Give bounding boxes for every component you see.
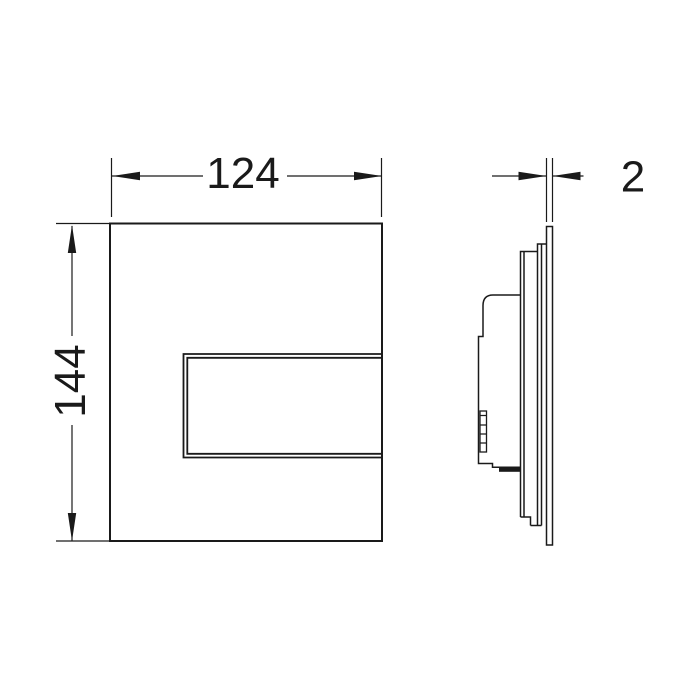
mechanism-foot [499, 467, 521, 472]
technical-drawing-canvas: 124 144 2 [0, 0, 700, 700]
thickness-dimension-label: 2 [621, 153, 645, 202]
thickness-dimension: 2 [492, 153, 645, 223]
front-view [110, 224, 382, 542]
plate-front-outline [110, 224, 382, 542]
flush-button-inner-outline [187, 358, 382, 454]
width-dimension: 124 [112, 149, 383, 217]
flush-plate-technical-drawing: 124 144 2 [0, 0, 700, 700]
side-view [479, 227, 553, 546]
thickness-arrow-left-icon [519, 172, 547, 180]
height-dimension-label: 144 [46, 344, 95, 417]
thickness-extension-lines [547, 158, 553, 222]
width-dimension-label: 124 [206, 149, 279, 198]
height-arrow-top-icon [68, 225, 76, 253]
mechanism-housing-profile [479, 295, 521, 467]
frame-profile [531, 244, 547, 526]
height-arrow-bottom-icon [68, 513, 76, 541]
plate-side-profile [547, 227, 553, 546]
mechanism-rack [480, 411, 487, 452]
height-dimension: 144 [46, 224, 110, 542]
width-arrow-left-icon [112, 172, 140, 180]
carrier-profile [521, 252, 538, 526]
width-arrow-right-icon [354, 172, 382, 180]
thickness-arrow-right-icon [553, 172, 581, 180]
flush-button-outer-outline [184, 354, 383, 458]
